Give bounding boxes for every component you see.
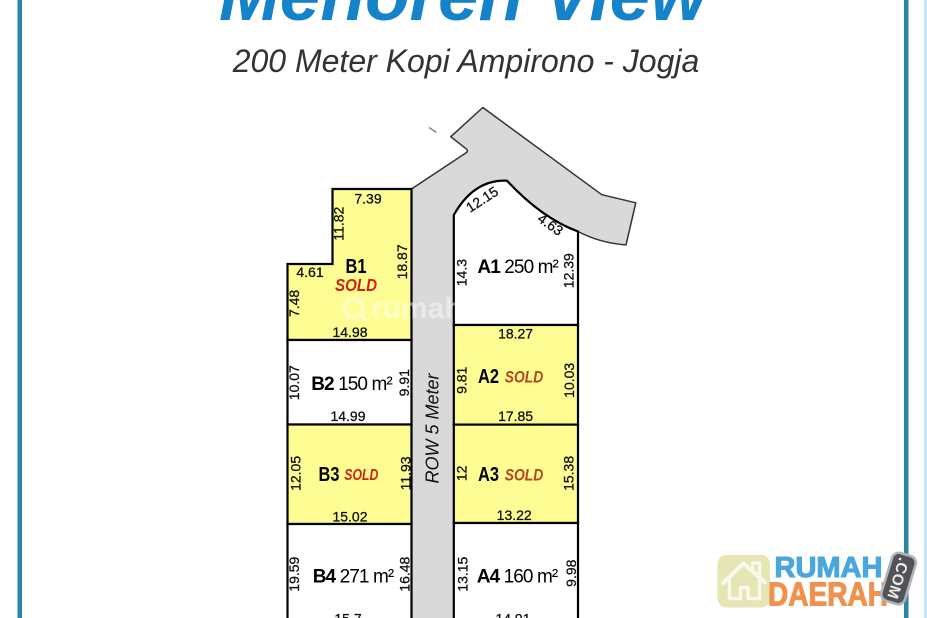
svg-text:A2: A2 [478, 366, 499, 388]
svg-text:15.38: 15.38 [561, 456, 577, 491]
svg-text:A3: A3 [478, 464, 499, 486]
svg-text:10.07: 10.07 [286, 365, 302, 400]
svg-text:12: 12 [454, 465, 470, 481]
svg-text:SOLD: SOLD [344, 467, 378, 484]
svg-text:18.27: 18.27 [498, 326, 533, 342]
svg-text:14.91: 14.91 [495, 611, 530, 618]
svg-text:11.93: 11.93 [398, 456, 414, 490]
svg-text:7.48: 7.48 [286, 290, 302, 317]
svg-text:17.85: 17.85 [498, 408, 533, 424]
svg-text:9.98: 9.98 [563, 559, 579, 586]
svg-text:SOLD: SOLD [505, 368, 544, 387]
svg-text:200 Meter Kopi Ampirono - Jogj: 200 Meter Kopi Ampirono - Jogja [232, 43, 700, 79]
svg-text:10.03: 10.03 [561, 363, 577, 398]
svg-text:15.7: 15.7 [334, 611, 361, 618]
svg-text:ROW 5 Meter: ROW 5 Meter [423, 372, 443, 483]
svg-text:DAERAH: DAERAH [768, 576, 888, 613]
svg-text:4.61: 4.61 [296, 264, 323, 280]
svg-text:B3: B3 [319, 464, 340, 486]
svg-text:13.22: 13.22 [497, 507, 532, 523]
svg-text:14.3: 14.3 [454, 259, 470, 286]
svg-text:B4 271 m²: B4 271 m² [313, 567, 394, 588]
svg-text:14.99: 14.99 [330, 408, 365, 424]
svg-text:7.39: 7.39 [354, 191, 381, 207]
svg-text:18.87: 18.87 [394, 244, 410, 279]
svg-text:16.48: 16.48 [397, 556, 413, 591]
svg-text:15.02: 15.02 [332, 508, 367, 524]
svg-text:A1 250 m²: A1 250 m² [477, 257, 558, 278]
svg-text:12.39: 12.39 [560, 253, 576, 288]
svg-text:Menoreh View: Menoreh View [219, 0, 711, 36]
svg-text:12.05: 12.05 [288, 456, 304, 491]
svg-text:13.15: 13.15 [455, 556, 471, 591]
svg-text:11.82: 11.82 [331, 206, 347, 240]
svg-text:9.81: 9.81 [454, 366, 470, 393]
svg-text:19.59: 19.59 [286, 556, 302, 591]
svg-text:SOLD: SOLD [505, 466, 544, 485]
svg-text:A4 160 m²: A4 160 m² [477, 567, 558, 588]
svg-text:9.91: 9.91 [396, 369, 412, 396]
svg-text:14.98: 14.98 [332, 324, 367, 340]
svg-text:B2 150 m²: B2 150 m² [311, 374, 392, 395]
svg-text:rumahdaerah: rumahdaerah [371, 292, 561, 325]
